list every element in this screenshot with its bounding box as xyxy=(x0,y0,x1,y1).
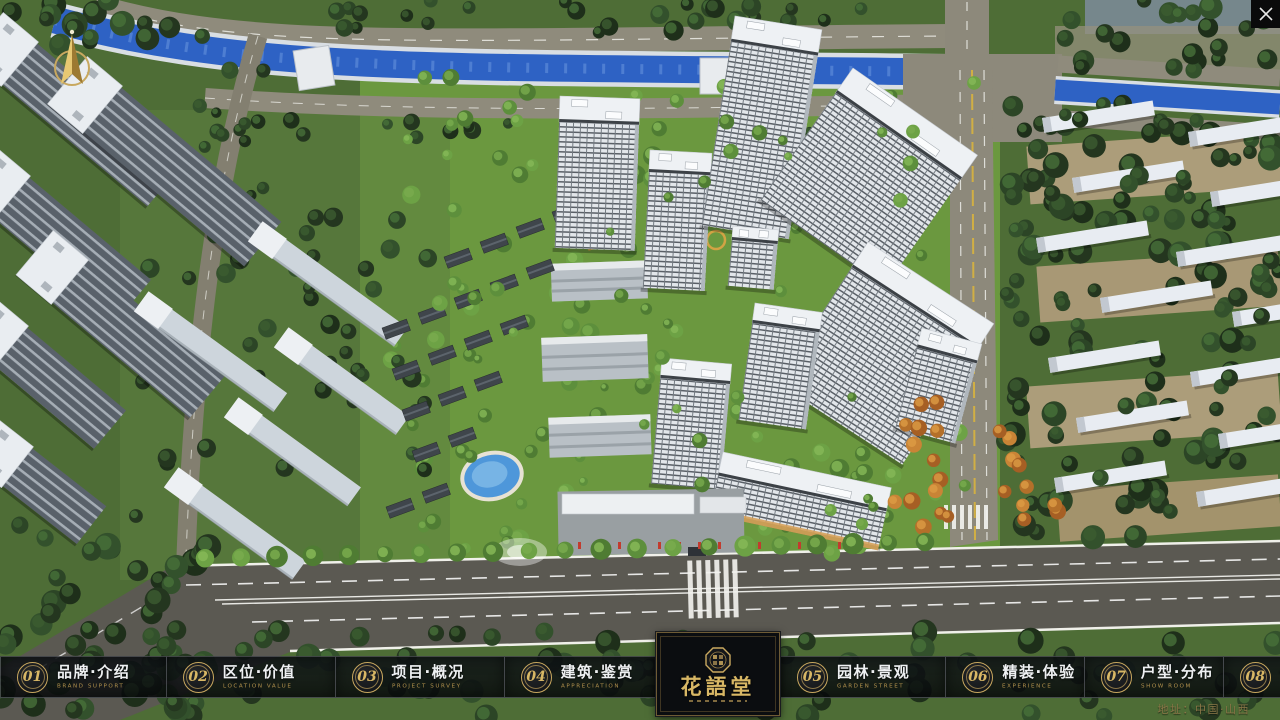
nav-item-garden[interactable]: 05 园林·景观 GARDEN STREET xyxy=(780,656,946,698)
nav-label-zh: 户型·分布 xyxy=(1141,661,1223,682)
nav-label: 户型·分布 SHOW ROOM xyxy=(1141,661,1223,693)
nav-num-badge: 01 xyxy=(17,662,48,693)
nav-label: 品牌·介绍 BRAND SUPPORT xyxy=(57,661,166,693)
seal-icon xyxy=(705,647,731,673)
nav-label-zh: 建筑·鉴赏 xyxy=(561,661,656,682)
nav-num-badge: 06 xyxy=(962,662,993,693)
nav-label: 精装·体验 EXPERIENCE xyxy=(1002,661,1083,693)
close-button[interactable] xyxy=(1251,0,1280,28)
logo-divider xyxy=(689,700,747,702)
bottom-navbar: 01 品牌·介绍 BRAND SUPPORT 02 区位·价值 LOCATION… xyxy=(0,656,1280,698)
nav-label-zh: 项目·概况 xyxy=(392,661,504,682)
nav-item-floorplan[interactable]: 07 户型·分布 SHOW ROOM xyxy=(1084,656,1224,698)
nav-num-badge: 05 xyxy=(797,662,828,693)
nav-label-en: BRAND SUPPORT xyxy=(57,683,124,689)
nav-item-views[interactable]: 08 一房·一景 COMMUNITY xyxy=(1223,656,1280,698)
nav-label: 建筑·鉴赏 APPRECIATION xyxy=(561,661,656,693)
nav-label-en: EXPERIENCE xyxy=(1002,683,1052,689)
nav-label: 园林·景观 GARDEN STREET xyxy=(837,661,945,693)
nav-num-badge: 08 xyxy=(1240,662,1271,693)
project-address: 地址：中国·山西 xyxy=(1158,701,1251,717)
nav-num-badge: 03 xyxy=(352,662,383,693)
nav-label-en: GARDEN STREET xyxy=(837,683,904,689)
nav-item-interior[interactable]: 06 精装·体验 EXPERIENCE xyxy=(945,656,1084,698)
project-title: 花語堂 xyxy=(681,676,756,697)
presentation-window: 01 品牌·介绍 BRAND SUPPORT 02 区位·价值 LOCATION… xyxy=(0,0,1280,720)
nav-num-badge: 02 xyxy=(183,662,214,693)
compass-icon xyxy=(40,26,104,98)
nav-item-location[interactable]: 02 区位·价值 LOCATION VALUE xyxy=(166,656,336,698)
nav-label: 区位·价值 LOCATION VALUE xyxy=(223,661,335,693)
close-icon xyxy=(1258,6,1274,22)
nav-label-en: APPRECIATION xyxy=(561,683,620,689)
nav-label-zh: 园林·景观 xyxy=(837,661,945,682)
nav-label-en: LOCATION VALUE xyxy=(223,683,292,689)
nav-label-zh: 区位·价值 xyxy=(223,661,335,682)
nav-label: 项目·概况 PROJECT SURVEY xyxy=(392,661,504,693)
nav-label-zh: 精装·体验 xyxy=(1002,661,1083,682)
nav-label-en: PROJECT SURVEY xyxy=(392,683,462,689)
nav-item-brand[interactable]: 01 品牌·介绍 BRAND SUPPORT xyxy=(0,656,167,698)
nav-num-badge: 04 xyxy=(521,662,552,693)
nav-num-badge: 07 xyxy=(1101,662,1132,693)
nav-item-project[interactable]: 03 项目·概况 PROJECT SURVEY xyxy=(335,656,505,698)
nav-label-zh: 品牌·介绍 xyxy=(57,661,166,682)
nav-label-en: SHOW ROOM xyxy=(1141,683,1192,689)
site-map-render[interactable] xyxy=(0,0,1280,720)
nav-item-architecture[interactable]: 04 建筑·鉴赏 APPRECIATION xyxy=(504,656,657,698)
project-logo[interactable]: 花語堂 xyxy=(656,632,780,716)
